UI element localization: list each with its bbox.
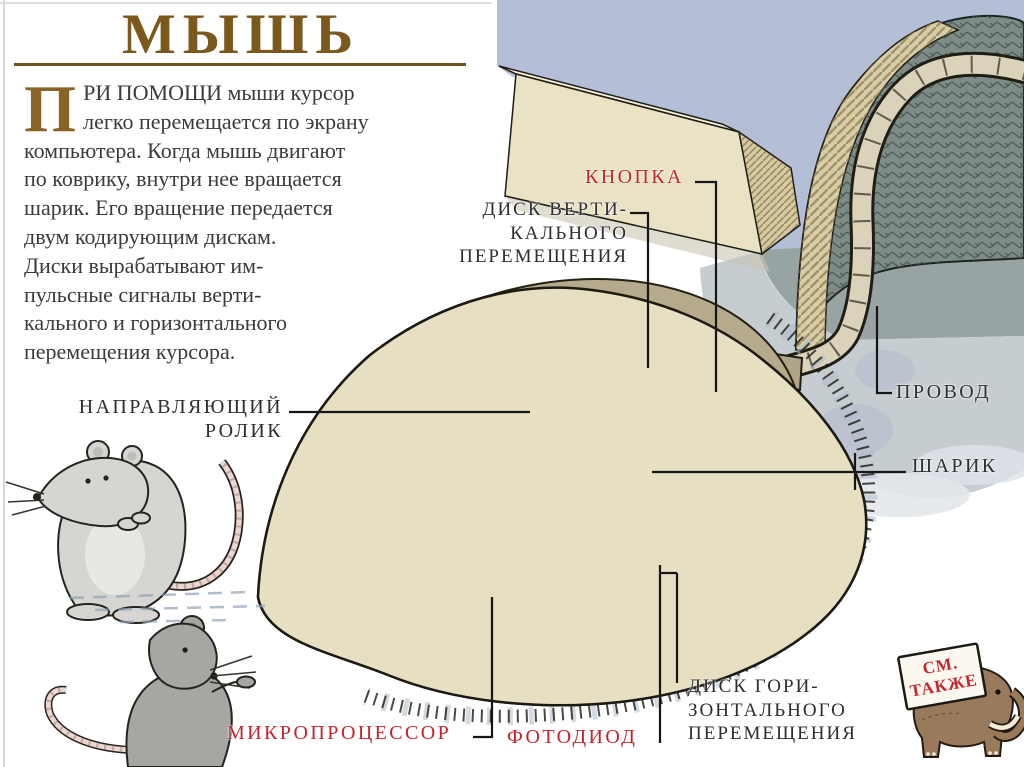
intro-line: компьютера. Когда мышь двигают xyxy=(24,137,460,166)
intro-line: легко перемещается по экрану xyxy=(24,108,460,137)
intro-line: шарик. Его вращение передается xyxy=(24,194,460,223)
label-horizontal-disk: ДИСК ГОРИ- ЗОНТАЛЬНОГО ПЕРЕМЕЩЕНИЯ xyxy=(688,675,857,746)
intro-line: пульсные сигналы верти- xyxy=(24,281,460,310)
rat-dark xyxy=(48,616,256,767)
label-button: КНОПКА xyxy=(585,166,684,189)
intro-paragraph: П РИ ПОМОЩИ мыши курсор легко перемещает… xyxy=(24,79,460,367)
intro-line: РИ ПОМОЩИ мыши курсор xyxy=(24,79,460,108)
label-wire: ПРОВОД xyxy=(896,381,991,404)
slide-left-border xyxy=(3,0,5,767)
intro-line: по коврику, внутри нее вращается xyxy=(24,165,460,194)
label-ball: ШАРИК xyxy=(912,455,998,478)
label-microprocessor: МИКРОПРОЦЕССОР xyxy=(227,722,451,745)
title-rule xyxy=(14,63,466,66)
intro-line: двум кодирующим дискам. xyxy=(24,223,460,252)
label-photodiode: ФОТОДИОД xyxy=(507,726,637,749)
intro-line: кального и горизонтального xyxy=(24,309,460,338)
page-title: МЫШЬ xyxy=(12,2,470,67)
intro-line: перемещения курсора. xyxy=(24,338,460,367)
drop-cap: П xyxy=(24,83,76,135)
label-vertical-disk: ДИСК ВЕРТИ- КАЛЬНОГО ПЕРЕМЕЩЕНИЯ xyxy=(428,198,628,269)
intro-line: Диски вырабатывают им- xyxy=(24,252,460,281)
rat-light xyxy=(6,441,265,623)
encyclopedia-slide-mouse: МЫШЬ П РИ ПОМОЩИ мыши курсор легко перем… xyxy=(0,0,1024,767)
label-guide-roller: НАПРАВЛЯЮЩИЙ РОЛИК xyxy=(36,396,283,443)
